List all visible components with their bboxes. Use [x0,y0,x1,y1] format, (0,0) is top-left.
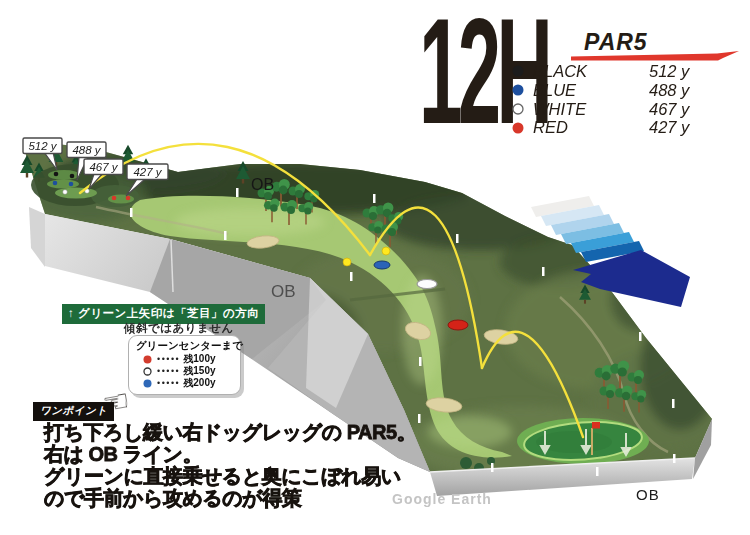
red-marker-icon [143,355,152,364]
legend-row-200y: ••••• 残200y [136,377,235,389]
tee-distance: 467 y [649,100,689,119]
leader-dots: ••••• [157,354,180,364]
tee-black [48,170,80,180]
tee-distance: 512 y [649,62,689,81]
ob-label-top: OB [251,176,274,193]
svg-text:488 y: 488 y [72,144,101,156]
landing-dot-1 [343,258,351,266]
strategy-line: グリーンに直接乗せると奥にこぼれ易い [44,465,416,487]
tee-name: RED [533,118,649,137]
tee-distance: 427 y [649,118,689,137]
tee-legend-row-white: WHITE 467 y [512,100,689,119]
marker-200y [374,261,390,269]
tee-distance: 488 y [649,81,689,100]
pointing-hand-icon: ☜ [101,385,133,419]
ob-label-cliff: OB [271,282,296,301]
black-tee-dot-icon [512,65,524,77]
tee-name: BLUE [533,81,649,100]
leader-dots: ••••• [157,378,180,388]
hole-guide-page: 512 y 488 y 467 y 427 y OB OB OB Google [0,0,750,535]
white-marker-icon [143,367,152,376]
strategy-line: 打ち下ろし緩い右ドッグレッグの PAR5。 [44,421,416,443]
tee-blue [47,180,79,189]
legend-label: 残200y [183,376,215,390]
svg-text:467 y: 467 y [89,161,118,173]
legend-title: グリーンセンターまで [136,339,235,353]
ob-label-bottom: OB [636,486,660,503]
white-tee-dot-icon [512,103,524,115]
one-point-badge: ワンポイント [33,402,114,421]
tee-legend-row-blue: BLUE 488 y [512,81,689,100]
leader-dots: ••••• [157,366,180,376]
tee-legend-row-red: RED 427 y [512,118,689,137]
svg-text:512 y: 512 y [28,140,57,152]
grain-note-sub: 傾斜ではありません [124,321,234,336]
hole-strategy-text: 打ち下ろし緩い右ドッグレッグの PAR5。 右は OB ライン。 グリーンに直接… [44,421,416,509]
strategy-line: ので手前から攻めるのが得策 [44,487,416,509]
marker-150y [417,280,437,289]
svg-text:427 y: 427 y [133,166,162,178]
red-tee-dot-icon [512,122,524,134]
landing-dot-2 [382,247,390,255]
marker-100y [448,320,468,330]
putting-green [517,418,649,464]
tee-distance-legend: BLACK 512 y BLUE 488 y WHITE 467 y RED 4… [512,62,689,137]
tee-legend-row-black: BLACK 512 y [512,62,689,81]
blue-marker-icon [143,379,152,388]
tee-red [108,195,134,204]
green-center-legend: グリーンセンターまで ••••• 残100y ••••• 残150y •••••… [128,335,241,395]
strategy-line: 右は OB ライン。 [44,443,416,465]
tee-name: WHITE [533,100,649,119]
tee-white [55,188,97,199]
blue-tee-dot-icon [512,84,524,96]
tee-name: BLACK [533,62,649,81]
